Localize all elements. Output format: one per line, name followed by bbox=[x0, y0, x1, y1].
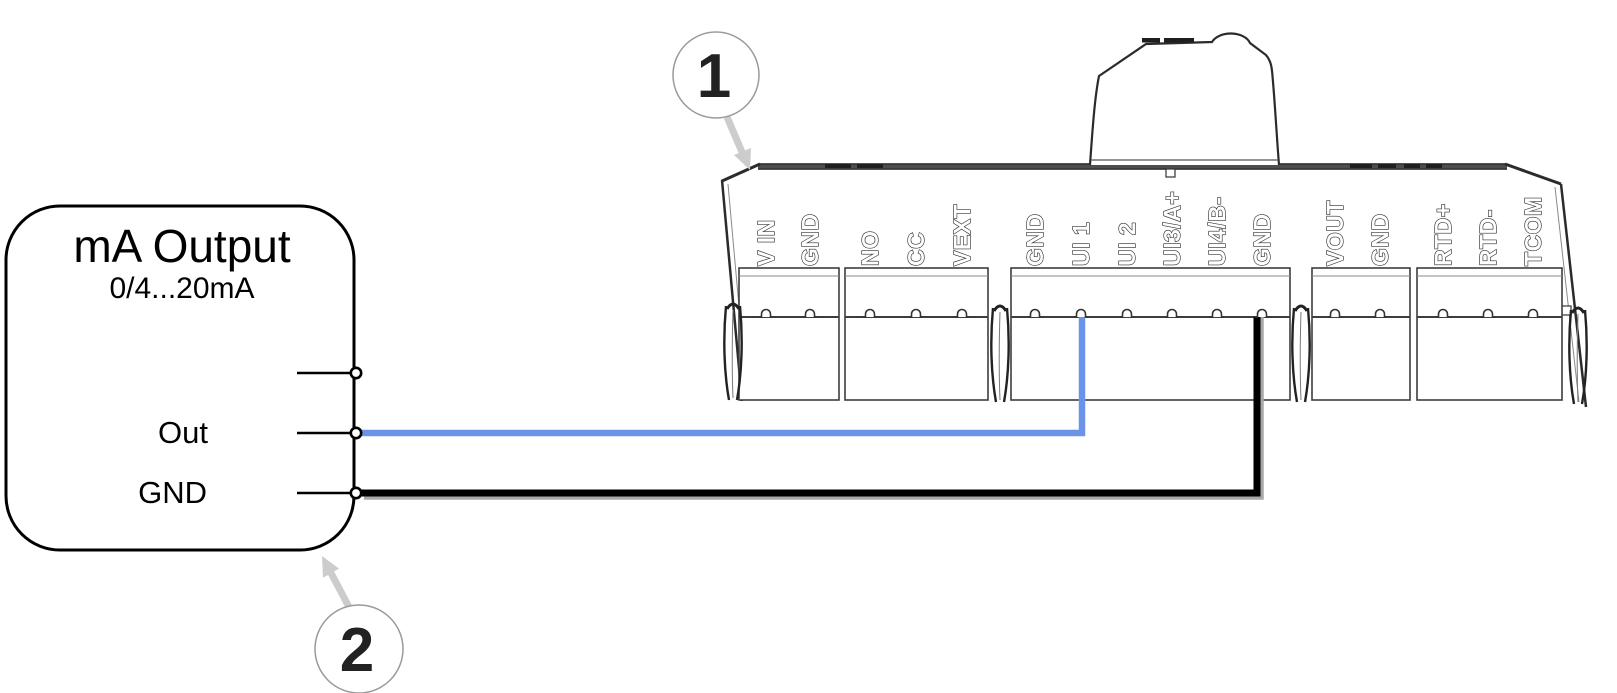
pin-circle-top bbox=[351, 368, 361, 378]
pin-label-gnd: GND bbox=[138, 475, 207, 510]
terminal-block bbox=[1011, 268, 1290, 400]
terminal-label-no: NO bbox=[857, 231, 883, 267]
source-box-subtitle: 0/4...20mA bbox=[109, 272, 254, 305]
wiring-diagram: V IN GND NO CC VEXT GND UI 1 UI 2 UI3/A+… bbox=[0, 0, 1617, 693]
callout-1-arrow-shaft bbox=[727, 117, 742, 152]
terminal-label-ui1: UI 1 bbox=[1068, 222, 1094, 266]
callout-2: 2 bbox=[315, 556, 403, 693]
terminal-label-gnd-4: GND bbox=[1367, 213, 1393, 266]
mount-dash bbox=[1404, 164, 1420, 169]
terminal-label-gnd-1: GND bbox=[797, 213, 823, 266]
mount-dash bbox=[1426, 164, 1442, 169]
pin-circle-out bbox=[351, 428, 361, 438]
source-box-title: mA Output bbox=[73, 220, 291, 272]
terminal-block bbox=[739, 268, 839, 400]
source-device-box: mA Output 0/4...20mA Out GND bbox=[6, 206, 361, 550]
terminal-label-rtd-plus: RTD+ bbox=[1430, 203, 1456, 266]
terminal-label-ui3-a: UI3/A+ bbox=[1159, 191, 1185, 266]
callout-2-number: 2 bbox=[340, 616, 374, 685]
device-right-edge bbox=[1561, 184, 1586, 407]
terminal-label-cc: CC bbox=[903, 232, 929, 266]
terminal-blocks bbox=[739, 268, 1562, 400]
knob-dash bbox=[1142, 38, 1160, 43]
terminal-block bbox=[1417, 268, 1562, 400]
terminal-label-rtd-minus: RTD- bbox=[1475, 209, 1501, 266]
mount-dash bbox=[857, 164, 883, 169]
terminal-label-gnd-3: GND bbox=[1249, 213, 1275, 266]
terminal-label-ui4-b: UI4/B- bbox=[1204, 197, 1230, 266]
terminal-label-v-in: V IN bbox=[753, 219, 779, 266]
pin-label-out: Out bbox=[158, 415, 208, 450]
edge-notch bbox=[1166, 169, 1175, 177]
callout-1: 1 bbox=[673, 32, 759, 170]
pin-circle-gnd bbox=[351, 488, 361, 498]
device-right-bevel bbox=[1505, 164, 1561, 184]
mount-dash bbox=[825, 164, 851, 169]
terminal-label-tcom: TCOM bbox=[1520, 196, 1546, 266]
terminal-label-vout: VOUT bbox=[1322, 200, 1348, 266]
callout-1-number: 1 bbox=[697, 42, 731, 111]
device-leg bbox=[991, 306, 1008, 402]
device-drawing: V IN GND NO CC VEXT GND UI 1 UI 2 UI3/A+… bbox=[361, 34, 1587, 497]
terminal-block bbox=[845, 268, 988, 400]
wiring-diagram-canvas: V IN GND NO CC VEXT GND UI 1 UI 2 UI3/A+… bbox=[0, 0, 1617, 693]
device-knob bbox=[1090, 34, 1279, 165]
terminal-label-gnd-2: GND bbox=[1022, 213, 1048, 266]
knob-dash bbox=[1164, 38, 1194, 43]
mount-dash bbox=[1350, 164, 1372, 169]
device-left-bevel bbox=[722, 164, 760, 181]
terminal-label-ui2: UI 2 bbox=[1114, 222, 1140, 266]
device-leg bbox=[1292, 306, 1309, 402]
terminal-label-vext: VEXT bbox=[949, 204, 975, 266]
device-leg bbox=[1569, 308, 1586, 404]
terminal-label-row: V IN GND NO CC VEXT GND UI 1 UI 2 UI3/A+… bbox=[753, 191, 1546, 266]
callout-2-arrow-shaft bbox=[331, 573, 349, 607]
mount-dash bbox=[1378, 164, 1396, 169]
terminal-block bbox=[1312, 268, 1410, 400]
